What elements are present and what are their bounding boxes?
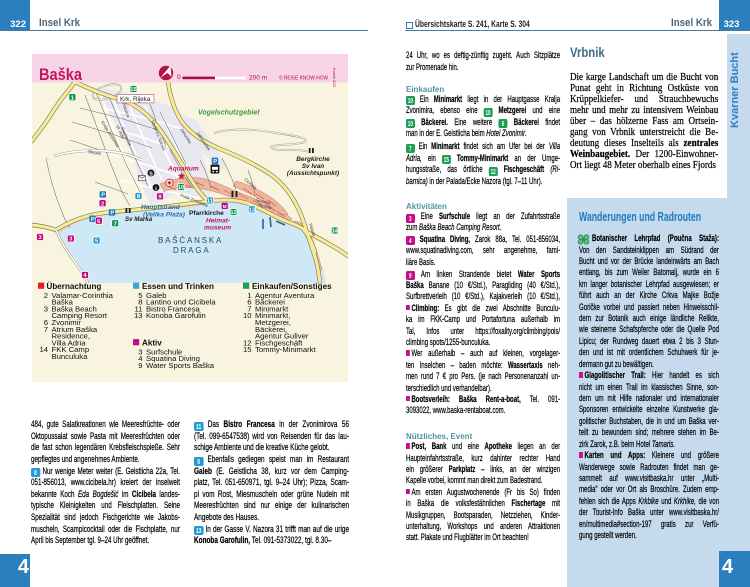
svg-text:10: 10 xyxy=(178,185,184,191)
svg-text:DRAGA: DRAGA xyxy=(173,246,210,255)
svg-text:Sv Ivan: Sv Ivan xyxy=(302,163,324,170)
svg-text:Essen und Trinken: Essen und Trinken xyxy=(142,282,214,291)
svg-text:P: P xyxy=(91,217,95,223)
svg-text:200 m: 200 m xyxy=(249,75,267,82)
svg-text:7: 7 xyxy=(114,221,117,227)
svg-text:Water Sports Baška: Water Sports Baška xyxy=(146,361,215,370)
svg-text:Pfarrkirche: Pfarrkirche xyxy=(189,210,224,217)
svg-text:Bergkirche: Bergkirche xyxy=(296,156,330,163)
svg-text:Baška: Baška xyxy=(39,66,83,84)
svg-text:12: 12 xyxy=(230,210,236,216)
svg-text:Aktiv: Aktiv xyxy=(142,339,162,348)
svg-text:13: 13 xyxy=(249,208,256,214)
svg-text:BAŠĆANSKA: BAŠĆANSKA xyxy=(158,236,223,245)
svg-text:0: 0 xyxy=(177,74,181,81)
svg-text:Tommy-Minimarkt: Tommy-Minimarkt xyxy=(255,345,317,354)
svg-text:Kvante 8/23: Kvante 8/23 xyxy=(332,68,336,87)
svg-text:15: 15 xyxy=(243,345,252,354)
svg-text:10: 10 xyxy=(243,311,252,320)
svg-text:Aquarium: Aquarium xyxy=(167,166,199,173)
svg-text:M: M xyxy=(223,204,227,209)
svg-text:3: 3 xyxy=(44,304,48,313)
svg-text:P: P xyxy=(101,193,105,199)
svg-text:S: S xyxy=(149,171,153,177)
svg-text:P: P xyxy=(110,211,114,217)
svg-text:Sv Marka: Sv Marka xyxy=(125,216,153,223)
svg-text:11: 11 xyxy=(207,199,214,205)
svg-text:2: 2 xyxy=(44,291,48,300)
svg-text:Einkaufen/Sonstiges: Einkaufen/Sonstiges xyxy=(252,282,332,291)
svg-text:Vogelschutzgebiet: Vogelschutzgebiet xyxy=(198,110,260,117)
svg-text:© REISE KNOW-HOW: © REISE KNOW-HOW xyxy=(279,75,328,82)
svg-text:14: 14 xyxy=(331,229,338,235)
svg-text:Heimat-: Heimat- xyxy=(206,218,230,225)
svg-text:13: 13 xyxy=(134,311,143,320)
svg-text:15: 15 xyxy=(130,87,137,93)
svg-text:Übernachtung: Übernachtung xyxy=(47,282,102,291)
svg-text:Konoba Garofulin: Konoba Garofulin xyxy=(146,311,206,320)
svg-text:7: 7 xyxy=(44,325,48,334)
svg-text:2: 2 xyxy=(101,201,104,207)
svg-text:P: P xyxy=(213,159,217,165)
svg-text:Hauptstrand: Hauptstrand xyxy=(141,204,181,211)
svg-text:(Aussichtspunkt): (Aussichtspunkt) xyxy=(287,170,339,177)
svg-text:Bunculuka: Bunculuka xyxy=(52,352,89,361)
svg-text:9: 9 xyxy=(138,361,142,370)
svg-text:museum: museum xyxy=(204,225,231,232)
svg-text:14: 14 xyxy=(39,345,48,354)
